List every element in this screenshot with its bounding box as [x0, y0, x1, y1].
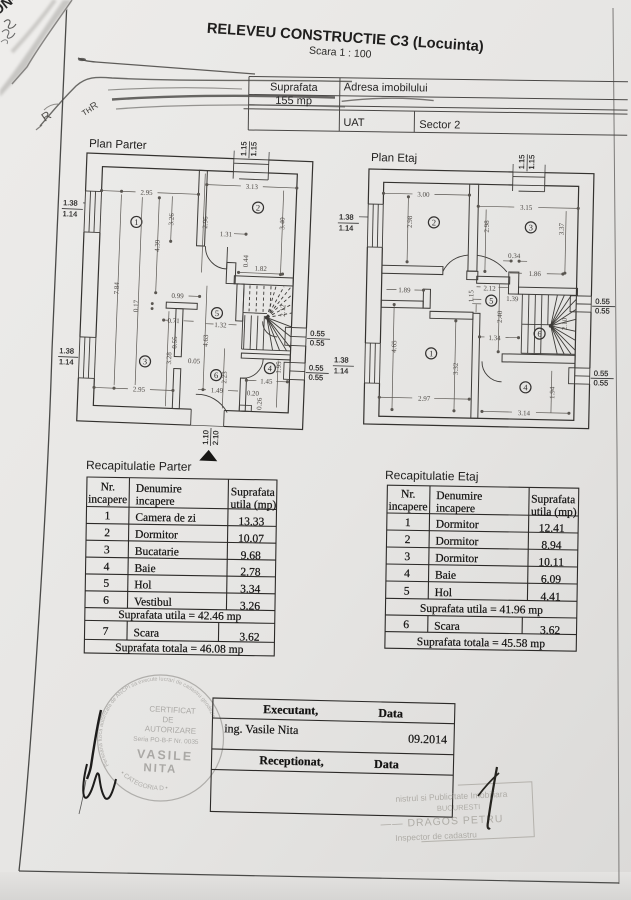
svg-text:Denumire: Denumire	[136, 483, 182, 496]
svg-text:0.20: 0.20	[247, 389, 260, 397]
svg-text:2: 2	[256, 203, 261, 213]
svg-text:2.10: 2.10	[561, 317, 569, 330]
svg-text:1: 1	[134, 217, 139, 227]
svg-text:VASILE: VASILE	[137, 747, 194, 764]
svg-text:3: 3	[529, 222, 533, 232]
svg-text:4: 4	[404, 568, 410, 580]
svg-text:Plan Parter: Plan Parter	[89, 138, 147, 152]
svg-text:1.10: 1.10	[201, 430, 211, 445]
svg-text:0.55: 0.55	[308, 373, 323, 383]
svg-text:1.49: 1.49	[211, 386, 224, 394]
svg-text:1: 1	[405, 517, 411, 529]
svg-text:09.2014: 09.2014	[408, 732, 447, 747]
svg-text:incapere: incapere	[388, 501, 427, 514]
svg-text:Denumire: Denumire	[436, 490, 482, 503]
svg-text:2.78: 2.78	[240, 566, 261, 578]
svg-text:3: 3	[404, 551, 410, 563]
svg-text:DE: DE	[162, 715, 174, 725]
svg-text:0.99: 0.99	[171, 292, 184, 300]
svg-text:1.15: 1.15	[517, 154, 526, 169]
svg-text:2.98: 2.98	[406, 215, 414, 228]
svg-text:6: 6	[214, 370, 219, 380]
svg-text:Suprafata utila = 41.96 mp: Suprafata utila = 41.96 mp	[420, 603, 543, 617]
svg-text:3.34: 3.34	[240, 583, 261, 595]
svg-text:1: 1	[429, 348, 433, 358]
svg-text:2: 2	[104, 527, 110, 539]
svg-text:2.95: 2.95	[140, 189, 153, 197]
svg-text:0.55: 0.55	[594, 369, 609, 378]
svg-text:ing. Vasile Nita: ing. Vasile Nita	[224, 721, 299, 737]
svg-text:5: 5	[489, 296, 493, 306]
svg-text:6: 6	[537, 329, 541, 339]
svg-text:1.38: 1.38	[63, 198, 78, 208]
svg-text:Suprafata totala = 46.08 mp: Suprafata totala = 46.08 mp	[115, 642, 244, 656]
svg-text:0.55: 0.55	[171, 336, 179, 349]
svg-text:155 mp: 155 mp	[275, 95, 312, 108]
svg-text:Recapitulatie Etaj: Recapitulatie Etaj	[385, 468, 479, 484]
svg-text:3.28: 3.28	[165, 352, 173, 365]
svg-text:1.38: 1.38	[59, 346, 74, 356]
svg-text:2.98: 2.98	[483, 220, 491, 233]
svg-text:Sector 2: Sector 2	[419, 119, 460, 132]
svg-text:5: 5	[103, 578, 109, 590]
svg-text:1.32: 1.32	[214, 321, 227, 329]
svg-text:3.26: 3.26	[167, 213, 175, 226]
svg-text:Nr.: Nr.	[101, 481, 116, 493]
svg-text:0.55: 0.55	[310, 329, 325, 339]
svg-text:0.55: 0.55	[595, 297, 610, 306]
svg-text:0.26: 0.26	[255, 397, 263, 410]
svg-text:Baie: Baie	[134, 563, 155, 575]
svg-text:2.12: 2.12	[483, 284, 496, 292]
svg-text:1.89: 1.89	[398, 286, 411, 294]
svg-text:Dormitor: Dormitor	[435, 552, 478, 565]
svg-text:5: 5	[215, 308, 220, 318]
svg-text:3.00: 3.00	[417, 191, 430, 199]
svg-text:1.45: 1.45	[260, 377, 273, 385]
svg-text:Dormitor: Dormitor	[436, 518, 479, 531]
svg-text:2.12: 2.12	[279, 304, 287, 317]
svg-text:Bucatarie: Bucatarie	[135, 546, 179, 559]
svg-text:13.33: 13.33	[238, 516, 264, 528]
svg-text:10.07: 10.07	[238, 533, 264, 545]
svg-text:1.15: 1.15	[239, 141, 249, 156]
svg-text:Recapitulatie Parter: Recapitulatie Parter	[86, 458, 192, 474]
svg-text:4.65: 4.65	[390, 340, 398, 353]
svg-text:Plan Etaj: Plan Etaj	[371, 152, 417, 165]
svg-text:8.94: 8.94	[541, 540, 562, 552]
svg-text:Suprafata: Suprafata	[531, 493, 575, 506]
svg-text:6: 6	[403, 619, 409, 631]
svg-text:1.39: 1.39	[506, 295, 519, 303]
svg-text:1.15: 1.15	[467, 289, 475, 302]
svg-text:5: 5	[404, 585, 410, 597]
svg-text:NITA: NITA	[143, 762, 178, 776]
svg-text:Baie: Baie	[435, 569, 456, 581]
svg-text:1.14: 1.14	[339, 223, 354, 232]
svg-text:2.10: 2.10	[211, 430, 221, 445]
svg-text:1.34: 1.34	[488, 334, 501, 342]
svg-text:10.11: 10.11	[538, 557, 564, 569]
svg-text:2.40: 2.40	[496, 310, 504, 323]
svg-text:2.96: 2.96	[201, 216, 209, 229]
svg-text:Suprafata: Suprafata	[270, 81, 319, 94]
svg-text:Executant,: Executant,	[263, 702, 318, 717]
svg-text:1.38: 1.38	[339, 212, 354, 221]
svg-text:0.34: 0.34	[508, 252, 521, 260]
svg-text:3.15: 3.15	[520, 204, 533, 212]
svg-text:1.38: 1.38	[334, 355, 349, 364]
svg-text:9.68: 9.68	[241, 550, 262, 562]
svg-text:6: 6	[103, 595, 109, 607]
svg-text:2.97: 2.97	[418, 395, 431, 403]
svg-text:12.41: 12.41	[539, 523, 565, 535]
svg-text:7: 7	[103, 626, 109, 638]
svg-text:3.32: 3.32	[452, 362, 460, 375]
svg-text:utila (mp): utila (mp)	[531, 506, 577, 519]
svg-text:4: 4	[104, 561, 110, 573]
svg-text:0.05: 0.05	[188, 357, 201, 365]
svg-text:Data: Data	[378, 706, 403, 721]
svg-text:Camera de zi: Camera de zi	[135, 512, 196, 525]
svg-text:Nr.: Nr.	[401, 488, 416, 500]
svg-text:0.55: 0.55	[310, 338, 325, 348]
svg-text:1.14: 1.14	[62, 209, 77, 219]
svg-text:3.26: 3.26	[240, 600, 261, 612]
svg-text:incapere: incapere	[88, 494, 127, 507]
svg-text:Dormitor: Dormitor	[135, 529, 178, 542]
svg-text:utila (mp): utila (mp)	[230, 499, 276, 512]
svg-text:Scara: Scara	[133, 627, 159, 639]
svg-text:Data: Data	[374, 757, 399, 772]
svg-text:1.95: 1.95	[275, 361, 283, 374]
svg-text:UAT: UAT	[343, 117, 365, 129]
svg-text:1.14: 1.14	[334, 366, 349, 375]
svg-text:1.94: 1.94	[548, 386, 556, 399]
svg-text:0.44: 0.44	[242, 254, 250, 267]
svg-text:4.41: 4.41	[541, 591, 562, 603]
svg-text:3: 3	[104, 544, 110, 556]
svg-text:1.15: 1.15	[249, 142, 259, 157]
svg-text:Scara: Scara	[434, 620, 460, 632]
svg-text:0.55: 0.55	[309, 363, 324, 373]
svg-text:3: 3	[143, 356, 148, 366]
svg-text:0.55: 0.55	[593, 378, 608, 387]
svg-text:2: 2	[405, 534, 411, 546]
svg-text:2.95: 2.95	[133, 385, 146, 393]
svg-text:1.86: 1.86	[529, 270, 542, 278]
svg-text:Adresa imobilului: Adresa imobilului	[344, 81, 428, 94]
svg-text:3.37: 3.37	[558, 222, 566, 235]
svg-text:4.63: 4.63	[202, 334, 210, 347]
svg-text:3.40: 3.40	[278, 217, 286, 230]
svg-text:Dormitor: Dormitor	[435, 535, 478, 548]
svg-text:Hol: Hol	[435, 587, 452, 599]
svg-text:4.39: 4.39	[153, 239, 161, 252]
svg-text:Hol: Hol	[134, 579, 151, 591]
svg-text:7.84: 7.84	[113, 281, 121, 294]
svg-text:6.09: 6.09	[541, 574, 562, 586]
svg-text:3.62: 3.62	[540, 625, 561, 637]
svg-text:3.62: 3.62	[239, 631, 260, 643]
svg-text:Vestibul: Vestibul	[134, 596, 172, 609]
svg-text:1.31: 1.31	[220, 230, 233, 238]
svg-text:3.14: 3.14	[518, 409, 531, 417]
svg-text:1.15: 1.15	[527, 155, 536, 170]
svg-text:0.55: 0.55	[595, 306, 610, 315]
svg-text:Suprafata totala = 45.58 mp: Suprafata totala = 45.58 mp	[417, 636, 546, 650]
svg-text:2: 2	[432, 217, 436, 227]
svg-text:1.14: 1.14	[59, 357, 74, 367]
svg-text:Suprafata utila = 42.46 mp: Suprafata utila = 42.46 mp	[118, 609, 241, 623]
svg-text:incapere: incapere	[436, 502, 475, 515]
svg-text:Receptionat,: Receptionat,	[259, 753, 324, 769]
svg-text:0.17: 0.17	[132, 299, 140, 312]
svg-text:1: 1	[104, 510, 110, 522]
svg-text:2.23: 2.23	[220, 371, 228, 384]
svg-text:3.13: 3.13	[246, 183, 259, 191]
svg-text:1.82: 1.82	[254, 265, 267, 273]
svg-text:incapere: incapere	[136, 495, 175, 508]
svg-text:Suprafata: Suprafata	[231, 486, 275, 499]
svg-text:0.71: 0.71	[167, 317, 180, 325]
